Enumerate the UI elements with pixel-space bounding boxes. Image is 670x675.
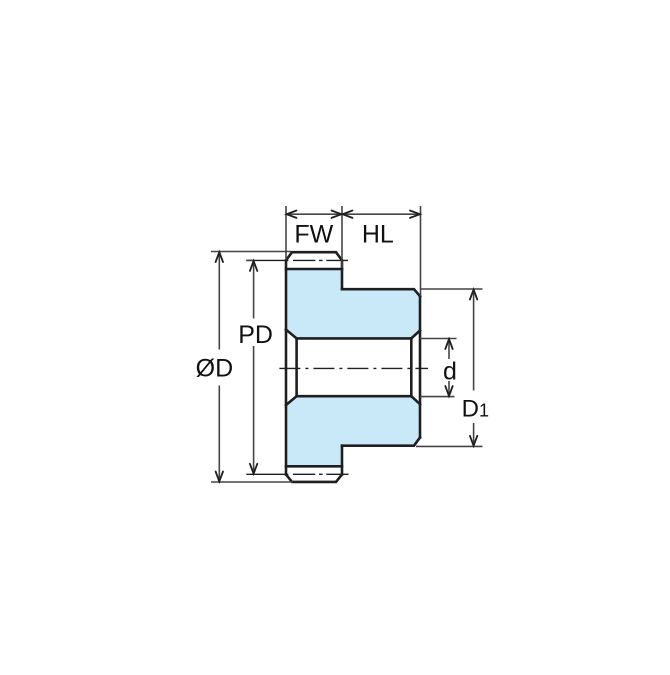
svg-text:ØD: ØD xyxy=(196,355,234,383)
svg-text:PD: PD xyxy=(238,321,273,349)
svg-text:d: d xyxy=(443,358,457,386)
svg-text:HL: HL xyxy=(362,220,394,248)
svg-text:FW: FW xyxy=(294,220,333,248)
svg-text:D1: D1 xyxy=(462,396,489,423)
